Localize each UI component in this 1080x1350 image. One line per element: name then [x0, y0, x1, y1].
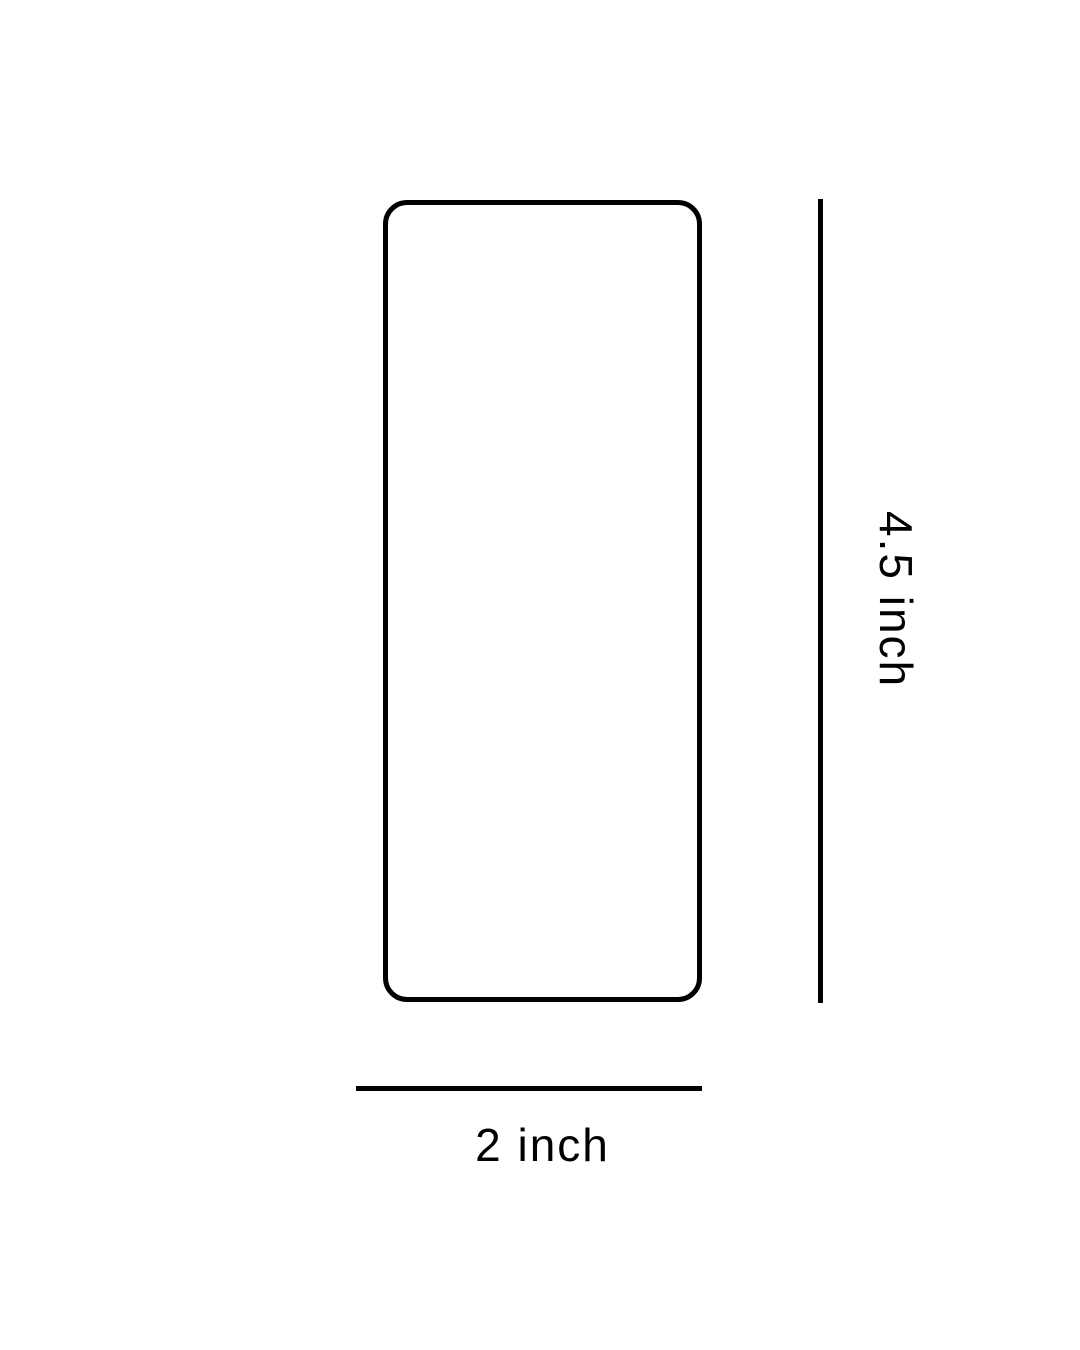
diagram-canvas: 4.5 inch 2 inch	[0, 0, 1080, 1350]
label-rectangle-outline	[383, 200, 702, 1002]
height-dimension-line	[818, 199, 823, 1003]
width-dimension-label: 2 inch	[383, 1118, 702, 1172]
width-dimension-line	[356, 1086, 702, 1091]
height-dimension-label: 4.5 inch	[858, 470, 934, 730]
